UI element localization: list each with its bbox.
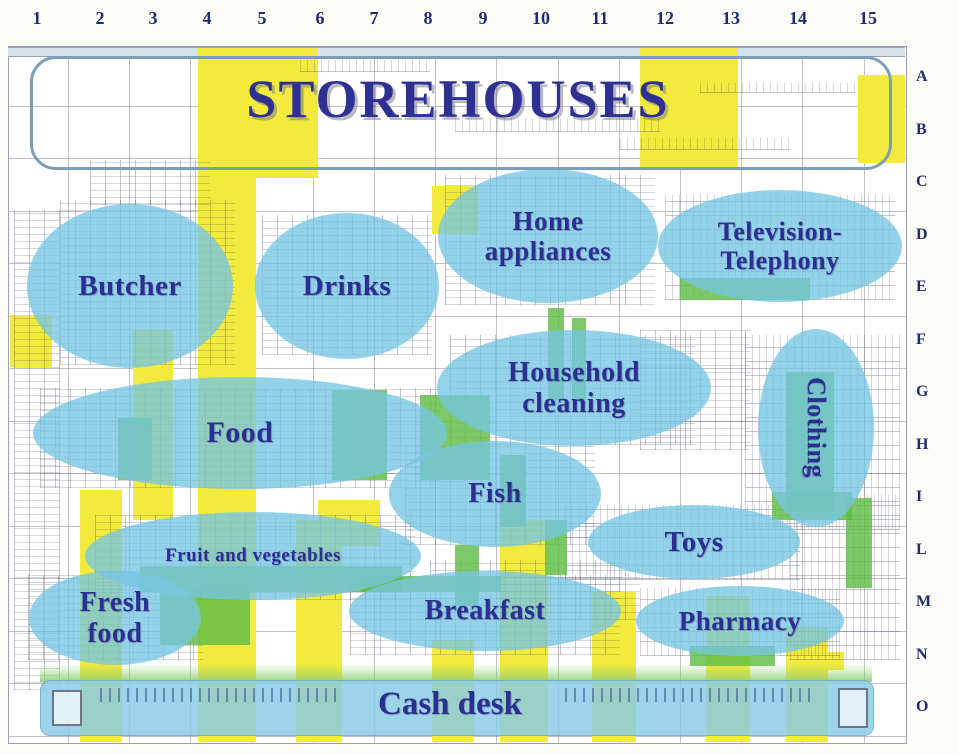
cash-desk-label: Cash desk — [300, 686, 600, 723]
department-toys: Toys — [588, 505, 800, 579]
department-label-line: cleaning — [508, 388, 640, 419]
department-fish: Fish — [389, 441, 601, 547]
row-letter: L — [916, 541, 927, 559]
row-letter: I — [916, 488, 922, 506]
column-number: 13 — [722, 8, 740, 29]
department-breakfast: Breakfast — [349, 571, 621, 651]
department-label-line: Household — [508, 357, 640, 388]
row-letter: N — [916, 646, 928, 664]
row-letter: E — [916, 278, 927, 296]
department-label-line: food — [80, 618, 150, 649]
row-letter: H — [916, 436, 928, 454]
row-letter: G — [916, 383, 928, 401]
department-label: Breakfast — [425, 595, 546, 626]
department-pharmacy: Pharmacy — [636, 586, 844, 656]
department-label: Television-Telephony — [718, 217, 842, 275]
row-letter: A — [916, 68, 928, 86]
row-letter: M — [916, 593, 931, 611]
row-letter: F — [916, 331, 926, 349]
store-map-image: 123456789101112131415ABCDEFGHILMNOButche… — [0, 0, 958, 754]
checkout-hatch — [565, 688, 815, 702]
department-label: Freshfood — [80, 587, 150, 650]
green-shelf-block — [846, 498, 872, 588]
column-number: 7 — [370, 8, 379, 29]
department-label: Butcher — [78, 270, 181, 302]
department-label-line: Food — [206, 416, 273, 450]
column-number: 10 — [532, 8, 550, 29]
department-label-line: Television- — [718, 217, 842, 246]
column-number: 6 — [316, 8, 325, 29]
department-household-cleaning: Householdcleaning — [437, 330, 711, 446]
department-television-telephony: Television-Telephony — [658, 190, 902, 302]
column-number: 12 — [656, 8, 674, 29]
column-number: 2 — [96, 8, 105, 29]
department-label: Fruit and vegetables — [165, 545, 341, 566]
column-number: 11 — [591, 8, 608, 29]
checkout-box — [52, 690, 82, 726]
column-number: 4 — [203, 8, 212, 29]
department-label-line: Clothing — [801, 378, 830, 479]
column-number: 8 — [424, 8, 433, 29]
department-label-line: Telephony — [718, 246, 842, 275]
department-label: Pharmacy — [679, 606, 801, 636]
checkout-hatch — [100, 688, 340, 702]
row-letter: B — [916, 121, 927, 139]
department-label-line: Home — [485, 206, 612, 236]
department-fresh-food: Freshfood — [29, 571, 201, 665]
department-home-appliances: Homeappliances — [438, 169, 658, 303]
department-label-line: appliances — [485, 236, 612, 266]
department-label-line: Fruit and vegetables — [165, 545, 341, 566]
column-number: 9 — [479, 8, 488, 29]
department-label: Householdcleaning — [508, 357, 640, 420]
department-label-line: Toys — [665, 526, 724, 558]
department-label: Food — [206, 416, 273, 450]
row-letter: C — [916, 173, 928, 191]
column-number: 3 — [149, 8, 158, 29]
row-letter: D — [916, 226, 928, 244]
department-label-line: Butcher — [78, 270, 181, 302]
department-label-line: Fish — [468, 478, 521, 509]
department-label: Clothing — [801, 378, 830, 479]
department-food: Food — [33, 377, 447, 489]
row-letter: O — [916, 698, 928, 716]
department-label-line: Fresh — [80, 587, 150, 618]
department-clothing: Clothing — [758, 329, 874, 527]
department-label-line: Drinks — [303, 270, 391, 302]
department-label: Toys — [665, 526, 724, 558]
column-number: 5 — [258, 8, 267, 29]
column-number: 1 — [33, 8, 42, 29]
column-number: 15 — [859, 8, 877, 29]
column-number: 14 — [789, 8, 807, 29]
checkout-box — [838, 688, 868, 728]
storehouses-title: STOREHOUSES — [30, 68, 886, 130]
department-drinks: Drinks — [255, 213, 439, 359]
department-label: Drinks — [303, 270, 391, 302]
department-label-line: Breakfast — [425, 595, 546, 626]
department-label-line: Pharmacy — [679, 606, 801, 636]
department-label: Fish — [468, 478, 521, 509]
department-label: Homeappliances — [485, 206, 612, 266]
department-butcher: Butcher — [27, 204, 233, 368]
